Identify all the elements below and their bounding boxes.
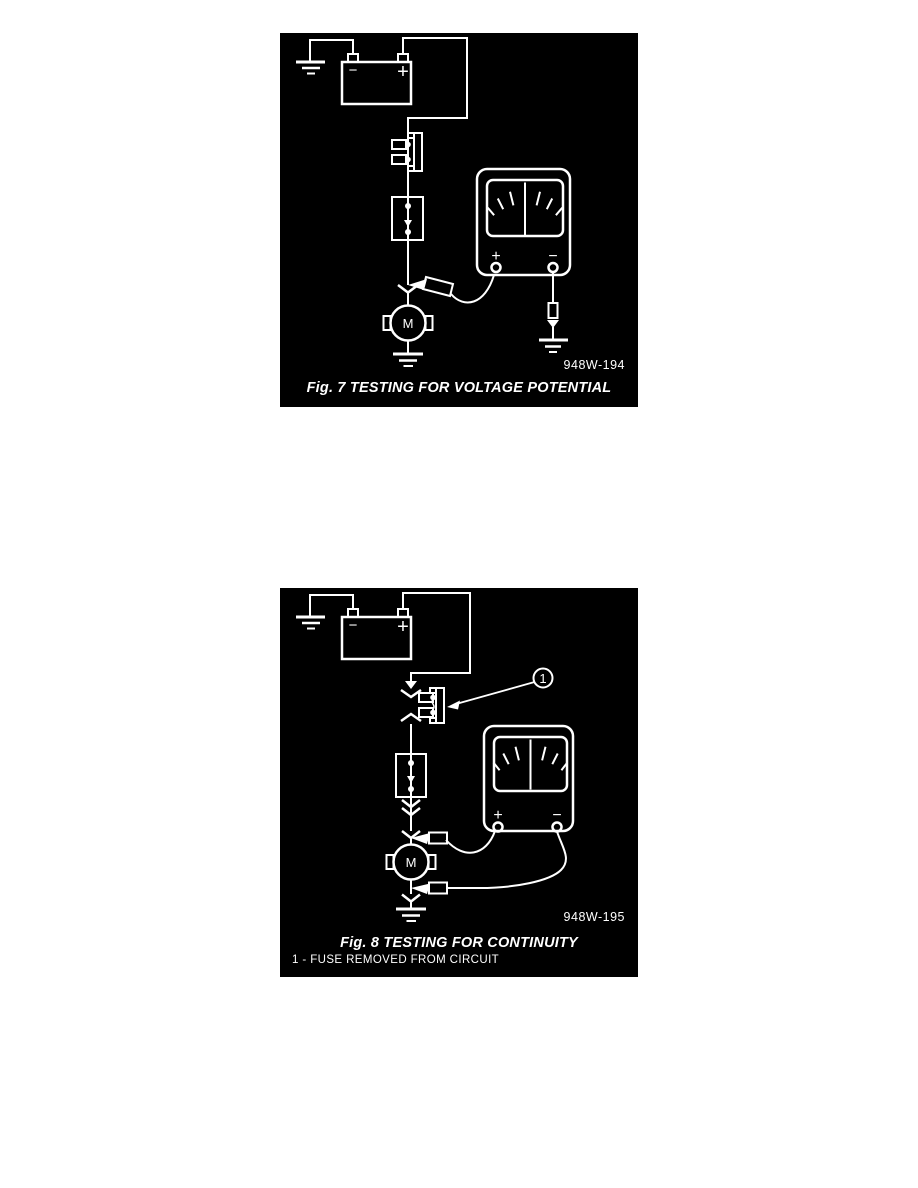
figure-8-diagram: − + 1 [280,588,638,977]
figure-8-caption: Fig. 8 TESTING FOR CONTINUITY [280,935,638,952]
ground-icon-motor [393,354,423,366]
figure-8-part-code: 948W-195 [564,910,625,924]
battery: − + [342,609,411,659]
battery-negative-label: − [349,62,358,79]
motor-label: M [406,855,417,870]
figure-7-part-code: 948W-194 [564,358,625,372]
callout-arrowhead [447,701,460,710]
ground-icon-battery [296,62,325,74]
figure-8-footnote: 1 - FUSE REMOVED FROM CIRCUIT [292,954,499,966]
figure-7-caption: Fig. 7 TESTING FOR VOLTAGE POTENTIAL [280,380,638,397]
voltmeter: + − [477,169,570,275]
ohmmeter: + − [484,726,573,832]
wiring [310,593,566,909]
positive-test-probe [402,831,447,844]
wiring [310,38,553,354]
motor: M [384,306,433,341]
motor-label: M [403,316,414,331]
motor: M [387,845,436,880]
callout-number: 1 [539,671,546,686]
figure-7-panel: − + [280,33,638,407]
callout-1: 1 [447,669,553,710]
removed-fuse [419,688,444,723]
positive-test-probe [398,277,453,296]
negative-test-probe [402,883,447,902]
battery-positive-label: + [397,616,409,638]
ground-icon-battery [296,617,325,629]
figure-8-panel: − + 1 [280,588,638,977]
battery-positive-label: + [397,61,409,83]
battery-negative-label: − [349,617,358,634]
figure-7-diagram: − + [280,33,638,407]
battery: − + [342,54,411,104]
ground-icon-motor [396,909,426,921]
callout-leader-line [456,682,535,704]
